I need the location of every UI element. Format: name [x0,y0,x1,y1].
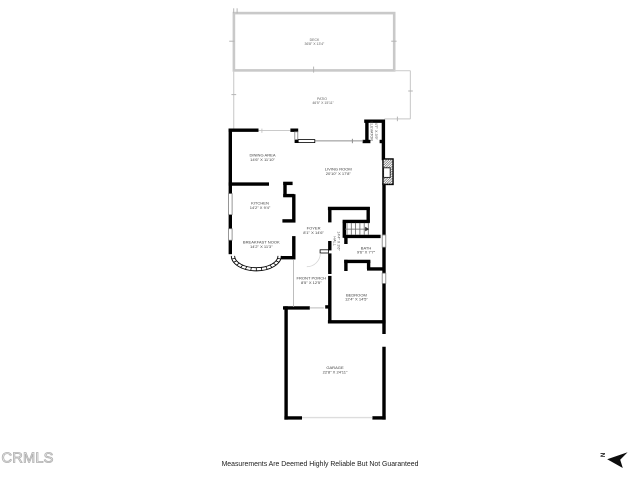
svg-text:8'5" X 12'5": 8'5" X 12'5" [301,280,322,285]
svg-text:14'2" X 11'3": 14'2" X 11'3" [250,244,273,249]
svg-text:22'8" X 24'11": 22'8" X 24'11" [323,369,348,374]
svg-text:HALL: HALL [333,236,337,246]
svg-text:36'8" X 13'4": 36'8" X 13'4" [305,42,326,46]
svg-text:ELEVATOR: ELEVATOR [370,121,374,141]
svg-text:12'4" X 14'5": 12'4" X 14'5" [345,297,368,302]
svg-text:9'6" X 7'7": 9'6" X 7'7" [357,250,376,255]
svg-text:CRMLS: CRMLS [2,450,54,466]
svg-text:4'7" X 3'9": 4'7" X 3'9" [374,123,378,141]
svg-text:14'6" X 11'10": 14'6" X 11'10" [250,157,275,162]
svg-text:46'5" X 15'11": 46'5" X 15'11" [312,101,334,105]
svg-text:14'2" X 9'4": 14'2" X 9'4" [250,205,271,210]
svg-text:N: N [599,453,606,458]
svg-text:20'10" X 17'8": 20'10" X 17'8" [326,171,352,176]
svg-text:Measurements Are Deemed Highly: Measurements Are Deemed Highly Reliable … [222,461,419,468]
svg-text:14'4" X 3'6": 14'4" X 3'6" [337,231,341,251]
svg-text:8'1" X 14'6": 8'1" X 14'6" [303,230,324,235]
